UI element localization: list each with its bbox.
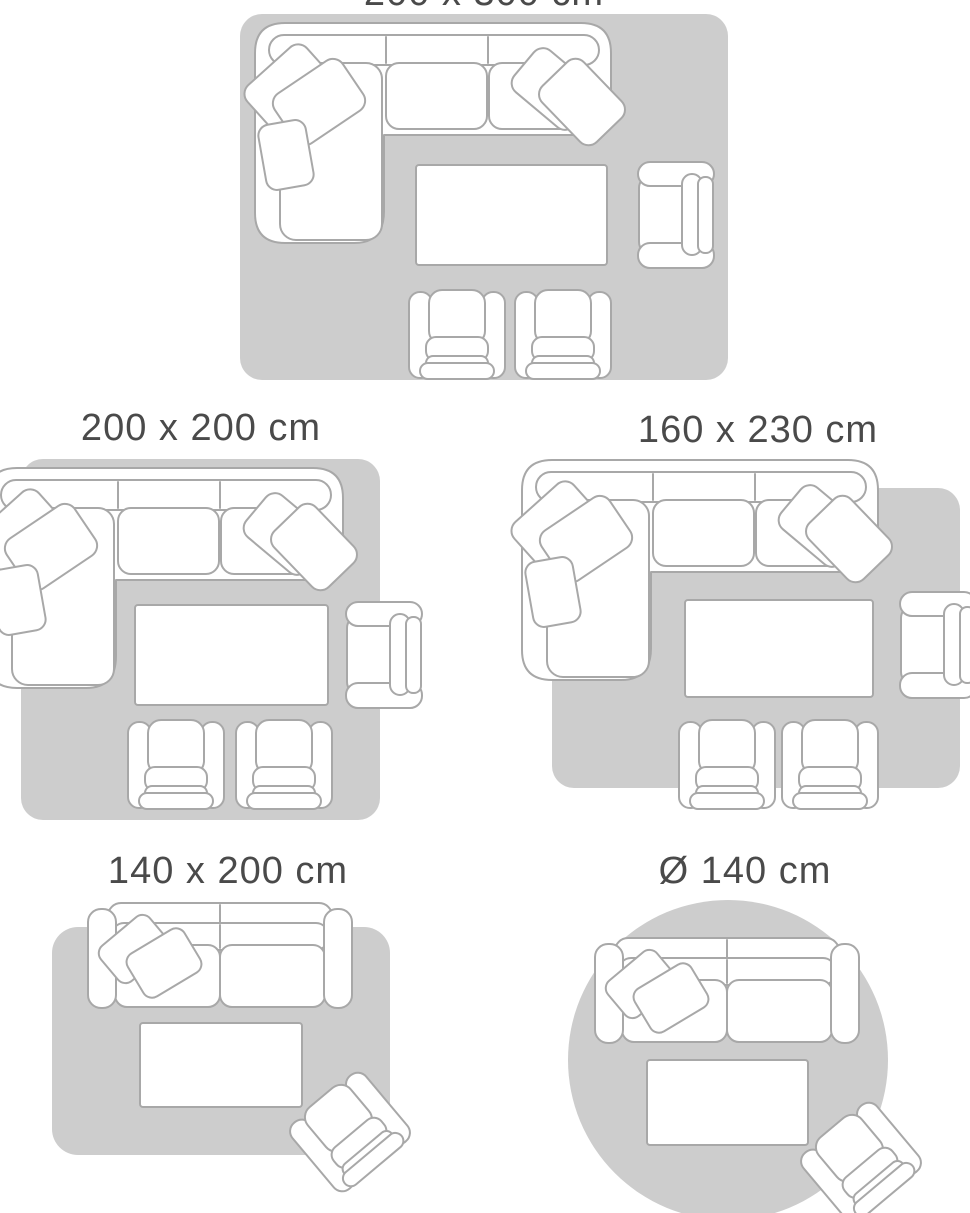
coffee-table — [135, 605, 328, 705]
coffee-table — [647, 1060, 808, 1145]
rug-size-guide: 200 x 300 cm 200 x 200 cm 160 x 230 cm 1… — [0, 0, 970, 1213]
scene-200x200 — [0, 459, 422, 820]
size-label-200x200: 200 x 200 cm — [81, 408, 321, 450]
size-label-160x230: 160 x 230 cm — [638, 410, 878, 452]
armchair — [409, 290, 505, 379]
scene-140x200 — [52, 903, 415, 1197]
coffee-table — [140, 1023, 302, 1107]
armchair — [900, 592, 970, 698]
coffee-table — [685, 600, 873, 697]
size-label-200x300: 200 x 300 cm — [364, 0, 604, 15]
scene-round-140 — [568, 900, 926, 1213]
scene-160x230 — [507, 460, 970, 809]
armchair — [128, 720, 224, 809]
armchair — [236, 720, 332, 809]
armchair — [346, 602, 422, 708]
two-seater-sofa — [88, 903, 352, 1008]
armchair — [782, 720, 878, 809]
armchair — [679, 720, 775, 809]
scene-200x300 — [240, 14, 728, 380]
armchair — [638, 162, 714, 268]
armchair — [515, 290, 611, 379]
coffee-table — [416, 165, 607, 265]
rug-size-guide-illustration — [0, 0, 970, 1213]
size-label-round-140: Ø 140 cm — [659, 851, 832, 893]
size-label-140x200: 140 x 200 cm — [108, 851, 348, 893]
two-seater-sofa — [595, 938, 859, 1043]
